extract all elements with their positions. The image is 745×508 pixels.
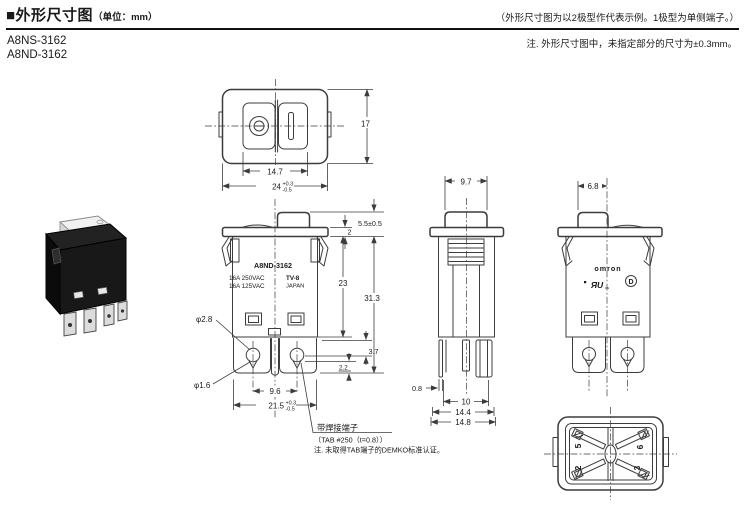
dim-side-overall: 14.8 [455, 418, 471, 427]
dim-mount-tol-minus: -0.5 [286, 407, 295, 413]
front-view: A8ND-3162 16A 250VAC 16A 125VAC TV-8 JAP… [194, 199, 444, 455]
dim-actuator-height: 5.5±0.5 [358, 219, 382, 228]
dim-side-pitch: 10 [462, 398, 471, 407]
dim-top-depth: 17 [361, 120, 370, 129]
dimension-drawing: omron ЯU Ⓓ [0, 0, 745, 508]
dim-hole-large: φ2.8 [196, 315, 213, 324]
dim-back-rocker: 6.8 [587, 182, 599, 191]
terminal-number-6: 6 [635, 444, 645, 449]
dim-top-width: 24 [272, 183, 281, 192]
marking-model: A8ND-3162 [254, 261, 292, 270]
marking-rating1: 16A 250VAC [229, 275, 265, 282]
product-photo: omron ЯU Ⓓ [46, 216, 127, 336]
mounting-clip [52, 248, 61, 264]
terminal-note-title: 带焊接端子 [317, 423, 358, 433]
marking-tv-rating: TV-8 [286, 275, 300, 282]
dim-terminal-step2: 2.2 [339, 365, 348, 372]
terminal-note-demko: 注. 未取得TAB端子的DEMKO标准认证。 [314, 446, 444, 455]
marking-rating2: 16A 125VAC [229, 283, 265, 290]
dim-top-width-tol-minus: -0.5 [283, 188, 292, 194]
top-view: 14.7 24 +0.3 -0.5 17 [205, 79, 374, 194]
dim-hole-small: φ1.6 [194, 381, 211, 390]
terminal-number-5: 5 [573, 443, 583, 448]
dim-side-body: 14.4 [455, 408, 471, 417]
marking-demko: D [628, 279, 633, 286]
terminal-note-tab: （TAB #250（t=0.8）） [314, 436, 387, 445]
dim-terminal-pitch: 9.6 [269, 387, 281, 396]
dim-tab-thickness: 0.8 [412, 384, 422, 393]
terminal-number-3: 3 [632, 465, 642, 470]
dim-total-height: 31.3 [364, 294, 380, 303]
marking-ul-sub: us [605, 286, 609, 290]
dim-side-rocker: 9.7 [460, 178, 472, 187]
dim-flange-thickness: 2 [348, 228, 352, 237]
dim-mount-width: 21.5 [268, 402, 284, 411]
marking-brand: omron [594, 264, 621, 273]
terminal-tab-6 [615, 428, 651, 450]
dim-terminal-step: 3.7 [369, 347, 379, 356]
dim-top-inner: 14.7 [267, 168, 283, 177]
marking-origin: JAPAN [286, 284, 304, 290]
datasheet-page: ■外形尺寸图（单位：mm） （外形尺寸图为以2极型作代表示例。1极型为单侧端子。… [0, 0, 745, 508]
terminal-number-2: 2 [573, 465, 583, 470]
bottom-view: 5 6 2 3 [544, 407, 677, 500]
terminal-tab [439, 340, 443, 377]
side-view: 9.7 0.8 10 14.4 14.8 [412, 176, 504, 428]
marking-ul-icon: ЯU [590, 280, 604, 290]
dim-body-height: 23 [339, 279, 348, 288]
back-view: 6.8 omron ЯU us D [558, 178, 662, 398]
